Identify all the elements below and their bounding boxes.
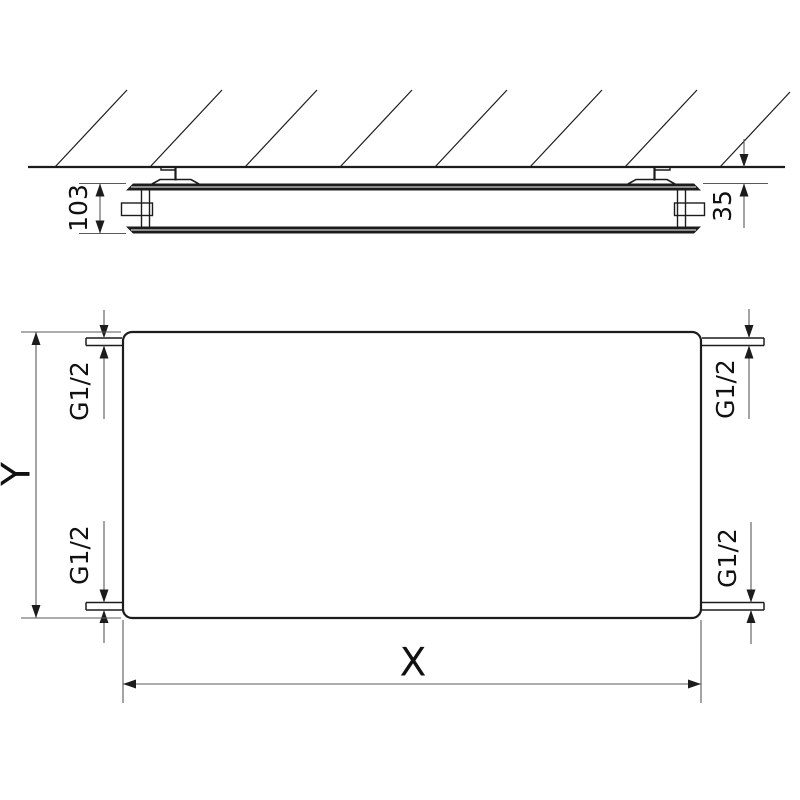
height-dimension-label: Y <box>0 462 40 487</box>
section-view: 103 35 <box>28 90 790 234</box>
hatch-line <box>245 90 317 167</box>
width-dimension-label: X <box>400 641 427 686</box>
arrow-up-icon <box>745 346 754 359</box>
technical-drawing: 103 35 <box>0 0 800 800</box>
hatch-line <box>435 90 507 167</box>
dimension-depth: 103 <box>64 184 126 234</box>
bracket-clip <box>152 180 199 185</box>
radiator-front-panel <box>123 332 701 618</box>
arrow-down-icon <box>96 221 105 234</box>
connection-stub-top-left <box>86 338 122 346</box>
hatch-line <box>340 90 412 167</box>
arrow-down-icon <box>32 605 41 618</box>
arrow-down-icon <box>747 590 756 603</box>
dimension-thread-bottom-left: G1/2 <box>65 521 109 643</box>
front-view: G1/2 G1/2 G1/2 G1/2 <box>0 309 764 703</box>
arrow-right-icon <box>688 680 701 689</box>
connection-stub-top-right <box>702 338 764 346</box>
arrow-down-icon <box>740 154 749 167</box>
dimension-height: Y <box>0 332 121 618</box>
hatch-line <box>150 90 222 167</box>
arrow-up-icon <box>32 332 41 345</box>
bracket-clip <box>628 180 675 185</box>
arrow-down-icon <box>100 590 109 603</box>
hatch-line <box>625 90 697 167</box>
dimension-wall-clearance: 35 <box>703 139 768 228</box>
thread-label-top-right: G1/2 <box>711 359 740 419</box>
clearance-dimension-label: 35 <box>708 190 737 222</box>
hatch-line <box>530 90 602 167</box>
dimension-thread-top-right: G1/2 <box>711 309 754 419</box>
wall-hatching <box>55 90 790 167</box>
side-connection-stub-right <box>675 203 705 216</box>
arrow-left-icon <box>123 680 136 689</box>
thread-label-bottom-left: G1/2 <box>65 525 94 585</box>
arrow-up-icon <box>747 610 756 623</box>
radiator-section-body <box>122 184 705 234</box>
arrow-down-icon <box>745 325 754 338</box>
arrow-up-icon <box>96 184 105 197</box>
arrow-up-icon <box>100 610 109 623</box>
thread-label-top-left: G1/2 <box>65 361 94 421</box>
connection-stub-bottom-left <box>86 603 122 611</box>
hatch-line <box>720 92 790 167</box>
side-connection-stub-left <box>122 203 153 216</box>
dimension-thread-top-left: G1/2 <box>65 310 109 421</box>
mounting-bracket-left <box>152 168 199 185</box>
depth-dimension-label: 103 <box>64 184 93 232</box>
mounting-bracket-right <box>628 168 675 185</box>
arrow-up-icon <box>100 346 109 359</box>
end-channels <box>142 189 686 227</box>
arrow-up-icon <box>740 184 749 197</box>
connection-stub-bottom-right <box>702 603 764 611</box>
dimension-thread-bottom-right: G1/2 <box>713 522 756 644</box>
hatch-line <box>55 90 127 167</box>
thread-label-bottom-right: G1/2 <box>713 528 742 588</box>
drawing-svg: 103 35 <box>0 0 800 800</box>
dimension-width: X <box>123 620 701 703</box>
